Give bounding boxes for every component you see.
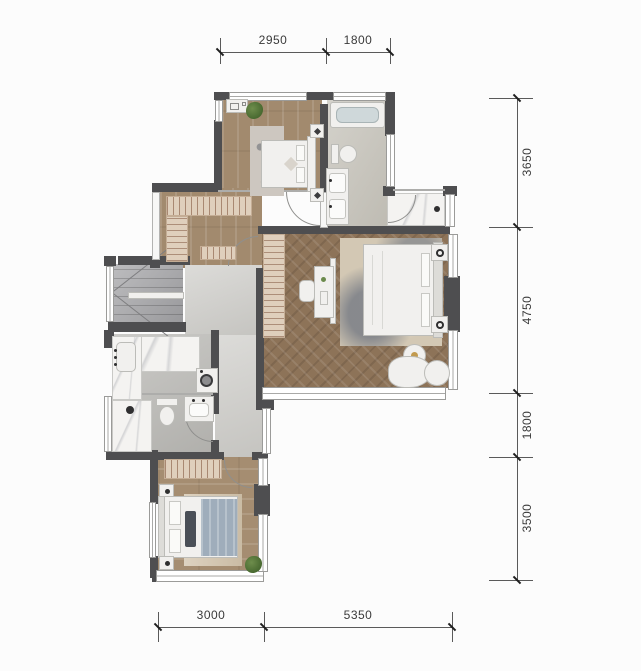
nightstand — [159, 556, 174, 570]
window — [262, 387, 446, 400]
wall — [306, 92, 334, 100]
nightstand — [310, 124, 324, 138]
window — [333, 92, 386, 101]
ac-unit-icon — [226, 99, 248, 113]
nightstand — [431, 244, 448, 261]
wall — [214, 120, 222, 190]
wall — [254, 484, 270, 516]
toilet-icon — [331, 144, 339, 164]
shower-drain-icon — [126, 406, 134, 414]
headboard — [307, 136, 316, 192]
chaise-lounge — [424, 360, 450, 386]
shower-handle-icon — [434, 206, 440, 212]
extension-line — [489, 98, 533, 99]
closet-rack — [166, 216, 188, 262]
wall — [104, 256, 116, 266]
throw — [185, 511, 196, 547]
corridor-landing — [185, 265, 262, 335]
stair-handrail — [128, 292, 184, 299]
window — [149, 502, 156, 558]
nightstand — [159, 484, 174, 497]
dimension-label: 5350 — [328, 608, 388, 622]
dimension-label: 1800 — [328, 33, 388, 47]
wall — [108, 322, 186, 332]
dimension-line-right — [517, 98, 518, 580]
wall-lamp-icon — [314, 192, 321, 199]
wardrobe — [263, 234, 285, 338]
wall — [385, 92, 395, 136]
nightstand — [310, 188, 324, 202]
window — [106, 266, 114, 322]
closet-rack — [200, 246, 236, 260]
extension-line — [489, 580, 533, 581]
window — [386, 134, 395, 187]
bed — [363, 244, 435, 336]
window — [215, 100, 223, 122]
nightstand — [431, 316, 448, 333]
dimension-line-bottom — [158, 627, 452, 628]
dimension-label: 3500 — [520, 488, 534, 548]
toilet-icon — [156, 398, 178, 406]
window — [104, 396, 112, 452]
extension-line — [489, 227, 533, 228]
window — [445, 194, 455, 227]
dimension-label: 3000 — [181, 608, 241, 622]
toilet-bowl — [159, 406, 175, 426]
window — [448, 234, 458, 278]
floor-plan: 2950 1800 3650 4750 1800 3500 3000 5350 — [0, 0, 641, 671]
wall-lamp-icon — [314, 128, 321, 135]
partition-line — [393, 189, 445, 191]
window — [258, 458, 268, 486]
desk-chair — [299, 280, 315, 302]
vanity-sink — [184, 396, 214, 422]
wall — [258, 226, 450, 234]
window — [448, 330, 458, 390]
bed — [160, 496, 238, 558]
wardrobe — [164, 459, 222, 479]
extension-line — [489, 393, 533, 394]
wall — [150, 460, 158, 504]
dimension-label: 1800 — [520, 395, 534, 455]
sink-icon — [116, 342, 136, 372]
blanket — [201, 499, 237, 556]
dimension-label: 4750 — [520, 280, 534, 340]
wall — [152, 183, 218, 192]
bathtub-icon — [330, 102, 385, 128]
corridor — [215, 335, 262, 457]
desk — [314, 266, 334, 318]
headboard — [158, 496, 165, 558]
dimension-line-top — [220, 52, 390, 53]
window — [262, 408, 271, 454]
bed — [261, 140, 309, 188]
vanity-counter — [326, 168, 349, 225]
toilet-bowl — [339, 145, 357, 163]
closet-rack — [166, 196, 252, 216]
dimension-label: 3650 — [520, 132, 534, 192]
washing-machine-icon — [196, 368, 218, 393]
wall-light — [152, 192, 160, 260]
dimension-label: 2950 — [243, 33, 303, 47]
extension-line — [489, 457, 533, 458]
